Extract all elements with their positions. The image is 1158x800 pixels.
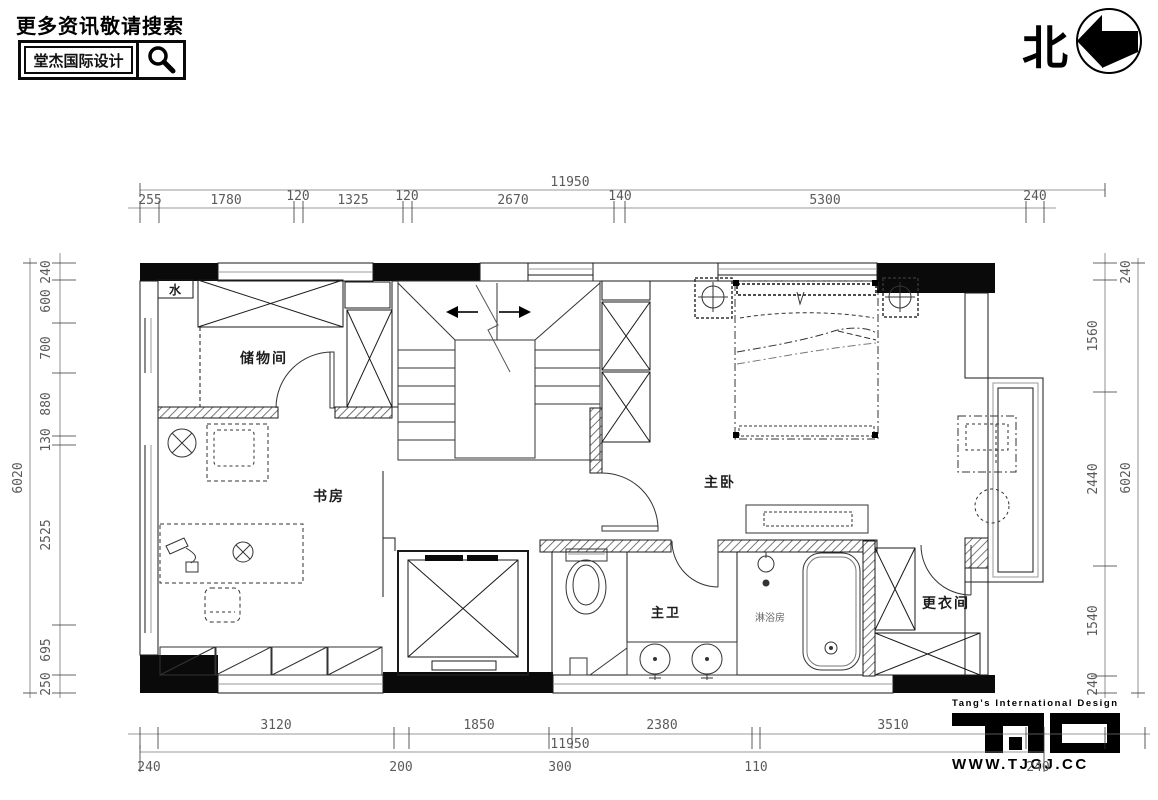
dim-left-2: 700 bbox=[39, 336, 54, 359]
dim-top-4: 120 bbox=[395, 189, 418, 204]
dim-right-0: 240 bbox=[1119, 260, 1134, 283]
room-label-study: 书房 bbox=[313, 488, 345, 504]
dim-bottom-major-1: 1850 bbox=[463, 718, 494, 733]
dim-left-3: 880 bbox=[39, 392, 54, 415]
dimensions-left: 6020 240 600 700 880 130 2525 695 250 bbox=[11, 253, 76, 698]
dim-top-0: 255 bbox=[138, 193, 161, 208]
room-label-dressing: 更衣间 bbox=[922, 595, 970, 611]
dim-left-1: 600 bbox=[39, 289, 54, 312]
dimensions-top: 11950 255 1780 120 1325 120 2670 140 530… bbox=[128, 175, 1105, 223]
dim-bottom-major-0: 3120 bbox=[260, 718, 291, 733]
hall-closets bbox=[602, 281, 650, 442]
dim-top-8: 240 bbox=[1023, 189, 1046, 204]
dim-right-2: 2440 bbox=[1086, 463, 1101, 494]
hatched-walls bbox=[158, 407, 988, 676]
dim-bottom-minor-1: 200 bbox=[389, 760, 412, 775]
dim-right-4: 240 bbox=[1086, 672, 1101, 695]
room-label-master-bath: 主卫 bbox=[651, 605, 681, 620]
floor-plan: 储物间 书房 主卧 主卫 更衣间 水 淋浴房 11950 255 1780 12… bbox=[0, 0, 1158, 800]
partitions bbox=[383, 281, 737, 675]
storage-room bbox=[158, 280, 392, 407]
dim-bottom-major-3: 3510 bbox=[877, 718, 908, 733]
room-label-storage: 储物间 bbox=[239, 350, 288, 366]
label-water: 水 bbox=[169, 282, 182, 297]
room-label-master-bedroom: 主卧 bbox=[704, 474, 736, 490]
label-shower: 淋浴房 bbox=[755, 611, 785, 624]
dim-bottom-minor-2: 300 bbox=[548, 760, 571, 775]
dim-top-3: 1325 bbox=[337, 193, 368, 208]
study-room bbox=[160, 424, 382, 675]
dim-right-total: 6020 bbox=[1119, 462, 1134, 493]
dim-left-6: 695 bbox=[39, 638, 54, 661]
dim-top-6: 140 bbox=[608, 189, 631, 204]
dim-left-5: 2525 bbox=[39, 519, 54, 550]
dressing-room bbox=[875, 548, 980, 675]
dim-top-7: 5300 bbox=[809, 193, 840, 208]
dim-bottom-major-2: 2380 bbox=[646, 718, 677, 733]
dim-right-3: 1540 bbox=[1086, 605, 1101, 636]
dim-left-total: 6020 bbox=[11, 462, 26, 493]
dim-left-0: 240 bbox=[39, 260, 54, 283]
dim-top-2: 120 bbox=[286, 189, 309, 204]
staircase bbox=[398, 281, 600, 460]
dim-left-4: 130 bbox=[39, 428, 54, 451]
dim-bottom-minor-0: 240 bbox=[137, 760, 160, 775]
dim-left-7: 250 bbox=[39, 672, 54, 695]
dim-bottom-minor-4: 240 bbox=[1026, 760, 1049, 775]
elevator-shaft bbox=[398, 551, 528, 675]
dimensions-right: 1560 2440 1540 240 240 6020 bbox=[1086, 253, 1145, 698]
dim-bottom-minor-3: 110 bbox=[744, 760, 767, 775]
dim-right-1: 1560 bbox=[1086, 320, 1101, 351]
dim-top-total: 11950 bbox=[550, 175, 589, 190]
dimensions-bottom: 3120 1850 2380 3510 11950 240 200 300 11… bbox=[128, 718, 1150, 775]
dim-top-1: 1780 bbox=[210, 193, 241, 208]
bathroom bbox=[566, 549, 860, 680]
dim-top-5: 2670 bbox=[497, 193, 528, 208]
dim-bottom-total: 11950 bbox=[550, 737, 589, 752]
